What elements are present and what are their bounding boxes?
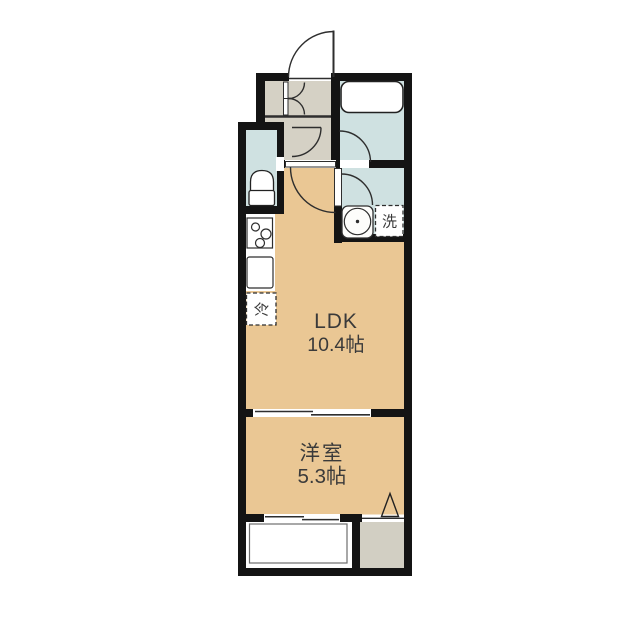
- floor-plan-svg: LDK 10.4帖 洋室 5.3帖 洗 冷: [0, 0, 640, 640]
- gas-stove-icon: [247, 218, 273, 248]
- wash-basin-drain-icon: [356, 220, 359, 223]
- hall-opening-gap: [276, 157, 284, 171]
- washroom-door-leaf: [335, 169, 342, 207]
- wall-top-right: [331, 73, 412, 81]
- toilet-tank-icon: [249, 191, 275, 206]
- service-space-floor: [356, 522, 404, 570]
- ldk-area-label: 10.4帖: [307, 334, 364, 356]
- entrance-door-opening: [289, 73, 331, 81]
- wall-entrance-bath: [331, 73, 340, 168]
- wall-bottom-outer: [238, 568, 412, 576]
- ldk-label: LDK: [314, 310, 358, 333]
- wall-partition-right: [371, 409, 405, 417]
- closet-door-leaf: [284, 99, 289, 116]
- bedroom-label: 洋室: [300, 442, 345, 465]
- washing-machine-label: 洗: [382, 214, 397, 231]
- wall-upper-left-vertical: [256, 73, 265, 130]
- bedroom-area-label: 5.3帖: [298, 465, 347, 488]
- bathtub-icon: [341, 82, 403, 113]
- closet-door-leaf: [284, 82, 289, 99]
- toilet-bowl-icon: [251, 171, 274, 192]
- bedroom-window-band: [264, 514, 340, 522]
- floor-plan-page: LDK 10.4帖 洋室 5.3帖 洗 冷: [0, 0, 640, 640]
- ldk-door-leaf: [286, 162, 336, 168]
- wall-partition-left: [238, 409, 253, 417]
- entrance-door-swing: [289, 32, 335, 78]
- sliding-door-band: [253, 409, 371, 417]
- bathroom-door-opening: [340, 160, 369, 168]
- wall-bath-washroom: [368, 160, 405, 168]
- wall-bedroom-bottom-left: [238, 514, 264, 522]
- wall-toilet-right-upper: [277, 122, 284, 158]
- refrigerator-label: 冷: [254, 301, 271, 316]
- kitchen-sink-icon: [247, 257, 273, 288]
- wall-balcony-divider: [352, 520, 360, 570]
- wall-right-outer: [404, 73, 412, 576]
- wall-left-outer: [238, 122, 246, 576]
- wall-toilet-bottom: [238, 206, 284, 214]
